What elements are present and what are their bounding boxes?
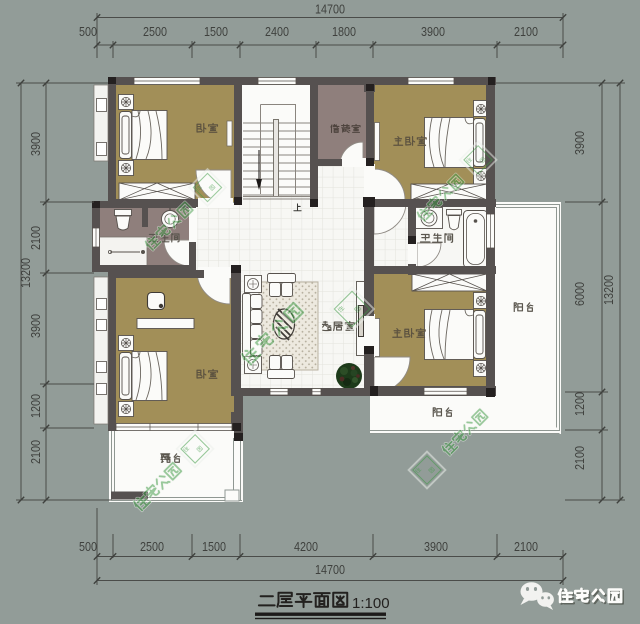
svg-text:500: 500 — [79, 539, 97, 554]
svg-text:1200: 1200 — [28, 394, 43, 418]
svg-text:2400: 2400 — [265, 24, 289, 39]
svg-text:3900: 3900 — [572, 131, 587, 155]
svg-text:1200: 1200 — [572, 392, 587, 416]
svg-text:2100: 2100 — [28, 226, 43, 250]
svg-text:3900: 3900 — [28, 132, 43, 156]
svg-text:1500: 1500 — [204, 24, 228, 39]
svg-text:2100: 2100 — [28, 440, 43, 464]
svg-text:3900: 3900 — [424, 539, 448, 554]
svg-text:2500: 2500 — [143, 24, 167, 39]
svg-text:3900: 3900 — [421, 24, 445, 39]
svg-text:500: 500 — [79, 24, 97, 39]
svg-text:1:100: 1:100 — [352, 595, 390, 612]
svg-text:1800: 1800 — [332, 24, 356, 39]
svg-text:13200: 13200 — [18, 258, 33, 288]
svg-text:3900: 3900 — [28, 314, 43, 338]
svg-text:14700: 14700 — [315, 562, 345, 577]
svg-text:13200: 13200 — [601, 275, 616, 305]
svg-text:6000: 6000 — [572, 282, 587, 306]
svg-text:2100: 2100 — [572, 446, 587, 470]
svg-text:2100: 2100 — [514, 539, 538, 554]
svg-text:4200: 4200 — [294, 539, 318, 554]
svg-text:14700: 14700 — [315, 2, 345, 17]
svg-text:1500: 1500 — [202, 539, 226, 554]
svg-text:2100: 2100 — [514, 24, 538, 39]
svg-text:2500: 2500 — [140, 539, 164, 554]
